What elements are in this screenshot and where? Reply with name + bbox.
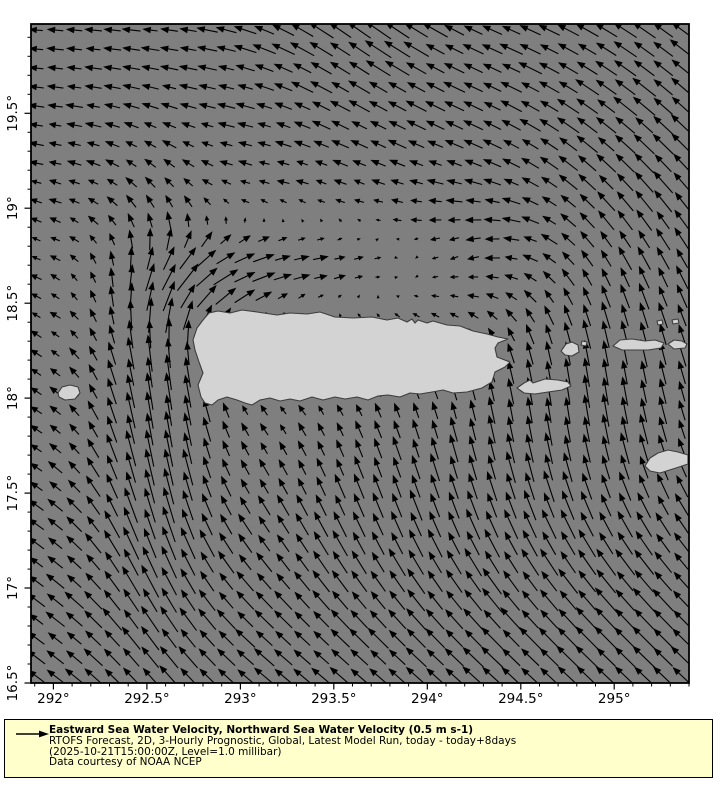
x-tick-label: 295° xyxy=(598,691,631,707)
island-st-thomas-st-john-tortola xyxy=(613,339,664,350)
x-tick-label: 294.5° xyxy=(498,691,543,707)
island-culebra-speck xyxy=(581,341,587,346)
vector-field-plot: 292°292.5°293°293.5°294°294.5°295°16.5°1… xyxy=(0,0,720,800)
x-axis: 292°292.5°293°293.5°294°294.5°295° xyxy=(35,683,689,707)
y-tick-label: 18° xyxy=(5,386,21,410)
y-tick-label: 17.5° xyxy=(5,475,21,512)
x-tick-label: 292° xyxy=(37,691,70,707)
y-tick-label: 17° xyxy=(5,576,21,600)
legend-subtitle-1: RTOFS Forecast, 2D, 3-Hourly Prognostic,… xyxy=(49,736,708,747)
plot-layers: 292°292.5°293°293.5°294°294.5°295°16.5°1… xyxy=(5,21,694,707)
y-tick-label: 19.5° xyxy=(5,95,21,132)
y-tick-label: 18.5° xyxy=(5,285,21,322)
x-tick-label: 292.5° xyxy=(124,691,169,707)
legend-subtitle-3: Data courtesy of NOAA NCEP xyxy=(49,757,708,768)
y-tick-label: 19° xyxy=(5,196,21,220)
x-tick-label: 293.5° xyxy=(311,691,356,707)
island-islet-speck-2 xyxy=(672,319,679,324)
y-tick-label: 16.5° xyxy=(5,665,21,702)
y-axis: 16.5°17°17.5°18°18.5°19°19.5° xyxy=(5,37,31,701)
legend-box: Eastward Sea Water Velocity, Northward S… xyxy=(4,719,713,778)
figure-canvas: 292°292.5°293°293.5°294°294.5°295°16.5°1… xyxy=(0,0,720,800)
island-islet-speck-1 xyxy=(657,320,663,325)
x-tick-label: 294° xyxy=(411,691,444,707)
island-mona-island xyxy=(58,385,80,400)
reference-arrow-icon xyxy=(15,728,51,740)
legend-text-block: Eastward Sea Water Velocity, Northward S… xyxy=(49,725,708,768)
x-tick-label: 293° xyxy=(224,691,257,707)
